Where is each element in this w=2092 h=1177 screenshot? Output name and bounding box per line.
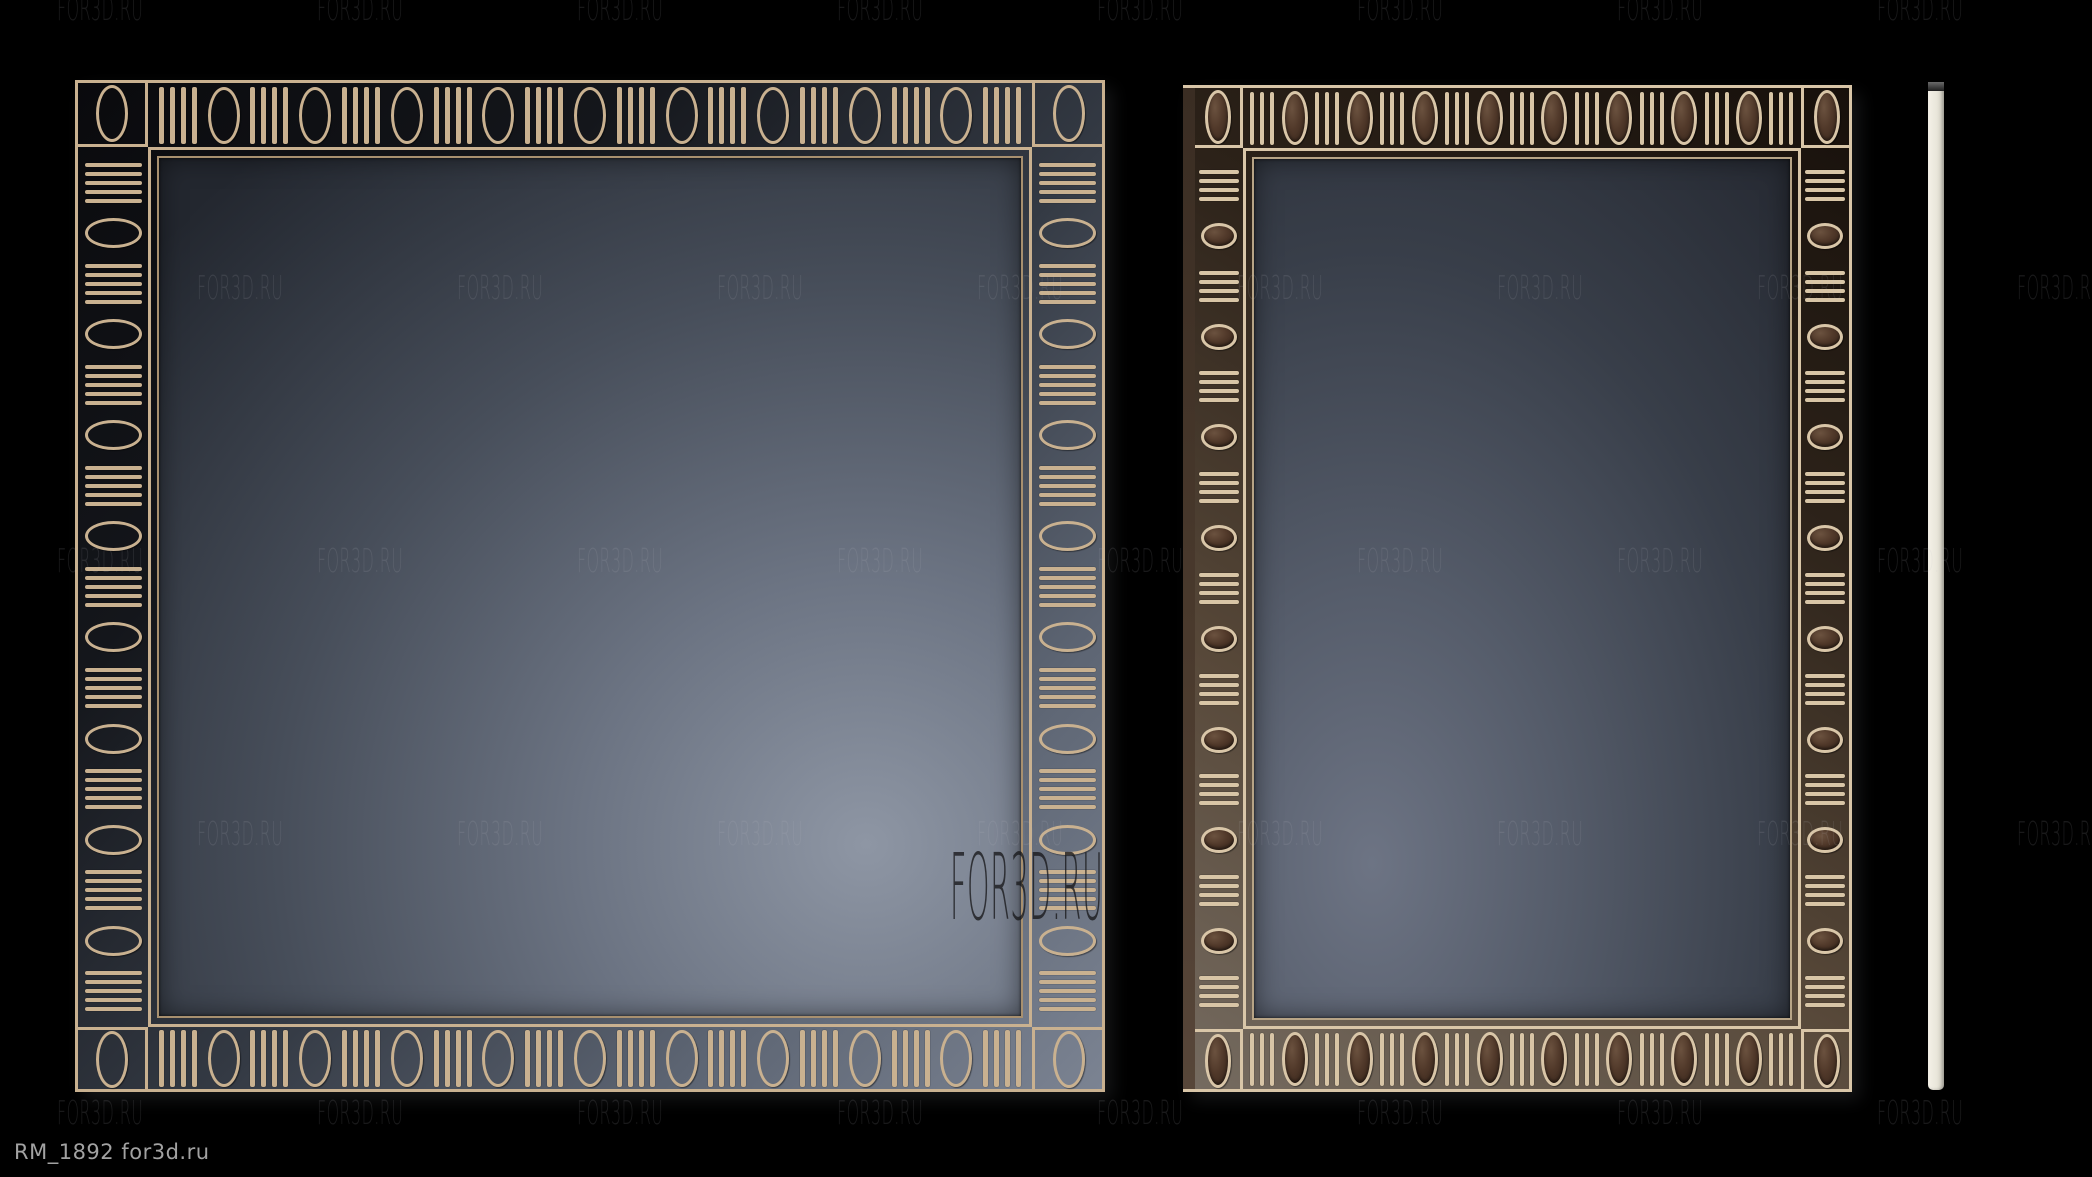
watermark-tile: FOR3D.RU <box>1097 544 1183 577</box>
bar-ornament <box>445 1030 450 1087</box>
bar-ornament <box>1039 998 1096 1002</box>
bar-ornament <box>1199 573 1239 577</box>
bar-ornament-group <box>983 87 1021 144</box>
bar-ornament <box>1039 585 1096 589</box>
oval-ornament <box>299 87 331 144</box>
oval-ornament <box>1039 218 1096 248</box>
bar-ornament <box>1199 280 1239 284</box>
bar-ornament <box>1805 985 1845 989</box>
bar-ornament <box>1199 298 1239 302</box>
oval-ornament <box>85 825 142 855</box>
bar-ornament <box>822 1030 827 1087</box>
oval-ornament <box>85 521 142 551</box>
bar-ornament <box>85 686 142 690</box>
bar-ornament <box>547 87 552 144</box>
bar-ornament <box>456 1030 461 1087</box>
bar-ornament <box>708 1030 713 1087</box>
bar-ornament <box>375 1030 380 1087</box>
bar-ornament <box>1199 976 1239 980</box>
bar-ornament-group <box>800 1030 838 1087</box>
bar-ornament <box>342 87 347 144</box>
bar-ornament-group <box>85 567 142 607</box>
bar-ornament-group <box>1199 875 1239 906</box>
frame-side-profile <box>1928 82 1944 1090</box>
bar-ornament-group <box>708 1030 746 1087</box>
bar-ornament <box>170 87 175 144</box>
bar-ornament <box>1039 603 1096 607</box>
bar-ornament <box>1039 787 1096 791</box>
bar-ornament <box>994 1030 999 1087</box>
bar-ornament <box>1725 1033 1729 1086</box>
oval-ornament <box>85 420 142 450</box>
oval-ornament <box>757 87 789 144</box>
oval-ornament <box>1671 1032 1697 1086</box>
bar-ornament <box>1199 801 1239 805</box>
bar-ornament-group <box>892 87 930 144</box>
oval-ornament <box>757 1030 789 1087</box>
bar-ornament <box>1039 181 1096 185</box>
bar-ornament <box>85 264 142 268</box>
watermark-tile: FOR3D.RU <box>1357 1096 1443 1129</box>
bar-ornament-group <box>1640 92 1664 145</box>
bar-ornament <box>1805 481 1845 485</box>
bar-ornament-group <box>1805 976 1845 1007</box>
bar-ornament <box>1705 92 1709 145</box>
bar-ornament <box>85 300 142 304</box>
bar-ornament <box>342 1030 347 1087</box>
right-ornament-strip <box>1801 148 1849 1029</box>
bar-ornament <box>1039 769 1096 773</box>
bar-ornament-group <box>525 87 563 144</box>
bar-ornament <box>1039 980 1096 984</box>
bar-ornament <box>1199 170 1239 174</box>
bar-ornament-group <box>342 87 380 144</box>
oval-ornament <box>1736 91 1762 145</box>
bar-ornament <box>434 87 439 144</box>
bar-ornament <box>983 87 988 144</box>
bar-ornament <box>1039 291 1096 295</box>
bar-ornament <box>1199 783 1239 787</box>
bar-ornament-group <box>1805 170 1845 201</box>
bar-ornament <box>1199 774 1239 778</box>
oval-ornament <box>1477 1032 1503 1086</box>
bar-ornament <box>85 484 142 488</box>
bar-ornament <box>1199 490 1239 494</box>
oval-ornament <box>1736 1032 1762 1086</box>
oval-ornament <box>1201 424 1237 450</box>
bar-ornament <box>85 998 142 1002</box>
watermark-tile: FOR3D.RU <box>1877 0 1963 25</box>
bar-ornament <box>85 383 142 387</box>
bar-ornament <box>1390 1033 1394 1086</box>
bar-ornament <box>1805 280 1845 284</box>
oval-ornament <box>1807 223 1843 249</box>
top-ornament-strip <box>1243 88 1801 148</box>
oval-ornament <box>1201 324 1237 350</box>
oval-ornament <box>666 87 698 144</box>
bar-ornament <box>1455 1033 1459 1086</box>
bar-ornament-group <box>1769 1033 1793 1086</box>
oval-ornament <box>85 319 142 349</box>
bar-ornament <box>903 87 908 144</box>
bar-ornament <box>445 87 450 144</box>
bar-ornament <box>1199 1003 1239 1007</box>
bar-ornament <box>800 1030 805 1087</box>
bar-ornament-group <box>250 1030 288 1087</box>
oval-ornament <box>1541 1032 1567 1086</box>
bar-ornament <box>1199 875 1239 879</box>
bar-ornament <box>434 1030 439 1087</box>
bar-ornament <box>833 87 838 144</box>
bar-ornament <box>1039 502 1096 506</box>
bar-ornament <box>558 87 563 144</box>
oval-ornament <box>85 218 142 248</box>
bar-ornament <box>1769 1033 1773 1086</box>
frame-corner-ornament <box>78 83 148 147</box>
oval-ornament <box>391 1030 423 1087</box>
oval-ornament <box>299 1030 331 1087</box>
bar-ornament <box>1805 792 1845 796</box>
oval-ornament <box>940 1030 972 1087</box>
bar-ornament <box>85 769 142 773</box>
bar-ornament <box>1039 484 1096 488</box>
corner-oval-ornament <box>96 1031 128 1088</box>
bar-ornament <box>1039 365 1096 369</box>
bar-ornament <box>1199 683 1239 687</box>
bar-ornament-group <box>1705 1033 1729 1086</box>
bar-ornament <box>1805 774 1845 778</box>
bar-ornament <box>85 576 142 580</box>
oval-ornament <box>1412 91 1438 145</box>
bar-ornament <box>1769 92 1773 145</box>
bar-ornament <box>1199 472 1239 476</box>
bar-ornament <box>1805 994 1845 998</box>
bar-ornament <box>250 1030 255 1087</box>
watermark-tile: FOR3D.RU <box>317 0 403 25</box>
bar-ornament <box>1039 796 1096 800</box>
bar-ornament-group <box>1250 92 1274 145</box>
bar-ornament <box>1805 600 1845 604</box>
bar-ornament-group <box>1640 1033 1664 1086</box>
oval-ornament <box>85 622 142 652</box>
bar-ornament <box>85 466 142 470</box>
bar-ornament <box>741 87 746 144</box>
oval-ornament <box>1807 324 1843 350</box>
bar-ornament-group <box>1805 472 1845 503</box>
bar-ornament <box>1510 92 1514 145</box>
bar-ornament <box>983 1030 988 1087</box>
oval-ornament <box>1039 521 1096 551</box>
bar-ornament <box>85 870 142 874</box>
bar-ornament-group <box>85 870 142 910</box>
bar-ornament <box>892 1030 897 1087</box>
bar-ornament-group <box>617 1030 655 1087</box>
bar-ornament <box>617 1030 622 1087</box>
bar-ornament <box>639 87 644 144</box>
bar-ornament <box>1585 1033 1589 1086</box>
bar-ornament <box>85 888 142 892</box>
bar-ornament <box>1039 300 1096 304</box>
bar-ornament <box>1039 805 1096 809</box>
bar-ornament <box>1805 499 1845 503</box>
bar-ornament <box>85 401 142 405</box>
bar-ornament <box>1530 1033 1534 1086</box>
bar-ornament <box>1199 792 1239 796</box>
bar-ornament <box>1039 282 1096 286</box>
bar-ornament <box>811 1030 816 1087</box>
oval-ornament <box>1282 1032 1308 1086</box>
bar-ornament <box>1520 1033 1524 1086</box>
bar-ornament <box>1595 1033 1599 1086</box>
watermark-tile: FOR3D.RU <box>2017 817 2092 850</box>
bar-ornament <box>1575 1033 1579 1086</box>
bar-ornament <box>1199 398 1239 402</box>
bar-ornament <box>1445 1033 1449 1086</box>
oval-ornament <box>85 926 142 956</box>
bar-ornament <box>914 1030 919 1087</box>
bar-ornament <box>617 87 622 144</box>
bar-ornament <box>1715 1033 1719 1086</box>
bar-ornament <box>85 365 142 369</box>
bar-ornament <box>1270 1033 1274 1086</box>
bar-ornament <box>85 971 142 975</box>
bar-ornament <box>1199 389 1239 393</box>
bar-ornament-group <box>85 163 142 203</box>
bar-ornament <box>1660 1033 1664 1086</box>
bar-ornament <box>1199 893 1239 897</box>
bar-ornament <box>1199 591 1239 595</box>
bar-ornament <box>85 493 142 497</box>
bar-ornament <box>1380 1033 1384 1086</box>
mirror-glass-cell <box>1243 148 1801 1029</box>
bar-ornament <box>547 1030 552 1087</box>
bar-ornament <box>85 475 142 479</box>
frame-corner-ornament <box>1801 1029 1849 1089</box>
bar-ornament <box>192 1030 197 1087</box>
bar-ornament <box>1715 92 1719 145</box>
bar-ornament-group <box>1250 1033 1274 1086</box>
oval-ornament <box>1807 525 1843 551</box>
oval-ornament <box>482 87 514 144</box>
watermark-tile: FOR3D.RU <box>837 0 923 25</box>
bar-ornament <box>170 1030 175 1087</box>
bar-ornament <box>1805 179 1845 183</box>
bar-ornament <box>1039 567 1096 571</box>
bar-ornament <box>1199 371 1239 375</box>
bar-ornament <box>800 87 805 144</box>
bar-ornament <box>85 172 142 176</box>
model-id-label: RM_1892 for3d.ru <box>14 1140 210 1164</box>
bar-ornament <box>85 392 142 396</box>
bar-ornament <box>1805 298 1845 302</box>
bar-ornament <box>1325 92 1329 145</box>
bar-ornament <box>1650 92 1654 145</box>
bar-ornament <box>1016 87 1021 144</box>
bar-ornament <box>1465 1033 1469 1086</box>
bar-ornament <box>467 1030 472 1087</box>
bar-ornament <box>1039 594 1096 598</box>
bar-ornament-group <box>525 1030 563 1087</box>
oval-ornament <box>1201 626 1237 652</box>
bar-ornament <box>1805 170 1845 174</box>
bar-ornament-group <box>1199 674 1239 705</box>
bar-ornament <box>1805 188 1845 192</box>
bar-ornament <box>1199 188 1239 192</box>
bar-ornament <box>85 668 142 672</box>
bar-ornament-group <box>250 87 288 144</box>
bar-ornament-group <box>892 1030 930 1087</box>
bar-ornament <box>1039 677 1096 681</box>
bar-ornament <box>892 87 897 144</box>
oval-ornament <box>1201 223 1237 249</box>
bar-ornament <box>364 87 369 144</box>
oval-ornament <box>1039 724 1096 754</box>
bar-ornament-group <box>342 1030 380 1087</box>
watermark-tile: FOR3D.RU <box>1877 1096 1963 1129</box>
bar-ornament-group <box>1039 264 1096 304</box>
bar-ornament-group <box>1199 774 1239 805</box>
bar-ornament <box>1260 1033 1264 1086</box>
oval-ornament <box>940 87 972 144</box>
watermark-tile: FOR3D.RU <box>317 1096 403 1129</box>
bar-ornament <box>85 787 142 791</box>
bar-ornament-group <box>85 466 142 506</box>
bar-ornament <box>181 87 186 144</box>
bar-ornament <box>628 87 633 144</box>
bar-ornament-group <box>1315 92 1339 145</box>
bar-ornament <box>1335 92 1339 145</box>
watermark-tile: FOR3D.RU <box>1617 0 1703 25</box>
oval-ornament <box>1412 1032 1438 1086</box>
left-ornament-strip <box>1195 148 1243 1029</box>
left-ornament-strip <box>78 147 148 1027</box>
oval-ornament <box>1347 91 1373 145</box>
bar-ornament <box>1805 1003 1845 1007</box>
bar-ornament <box>1805 674 1845 678</box>
bar-ornament <box>1039 264 1096 268</box>
oval-ornament <box>1606 1032 1632 1086</box>
bar-ornament <box>1039 273 1096 277</box>
bar-ornament <box>375 87 380 144</box>
bar-ornament <box>1199 380 1239 384</box>
frame-corner-ornament <box>1032 83 1102 147</box>
bar-ornament <box>708 87 713 144</box>
bar-ornament <box>914 87 919 144</box>
bar-ornament <box>650 1030 655 1087</box>
mirror-glass-cell <box>148 147 1032 1027</box>
bar-ornament <box>536 87 541 144</box>
bar-ornament-group <box>1575 92 1599 145</box>
oval-ornament <box>1201 525 1237 551</box>
bar-ornament <box>1039 475 1096 479</box>
bar-ornament-group <box>1805 573 1845 604</box>
corner-oval-ornament <box>1814 90 1840 144</box>
oval-ornament <box>85 724 142 754</box>
bar-ornament <box>1199 600 1239 604</box>
bar-ornament <box>1039 668 1096 672</box>
top-ornament-strip <box>148 83 1032 147</box>
bar-ornament-group <box>1315 1033 1339 1086</box>
bar-ornament <box>1039 392 1096 396</box>
bottom-ornament-strip <box>148 1027 1032 1089</box>
watermark-tile: FOR3D.RU <box>2017 271 2092 304</box>
bar-ornament <box>85 603 142 607</box>
frame-side-face <box>1183 88 1195 1089</box>
bar-ornament <box>1315 1033 1319 1086</box>
bar-ornament-group <box>1805 271 1845 302</box>
oval-ornament <box>1201 928 1237 954</box>
bar-ornament-group <box>617 87 655 144</box>
watermark-large: FOR3D.RU <box>950 842 1103 934</box>
bar-ornament-group <box>85 264 142 304</box>
oval-ornament <box>574 87 606 144</box>
bar-ornament <box>85 897 142 901</box>
watermark-tile: FOR3D.RU <box>1617 1096 1703 1129</box>
bar-ornament <box>1575 92 1579 145</box>
bar-ornament <box>85 796 142 800</box>
bar-ornament <box>1039 1007 1096 1011</box>
bar-ornament <box>1199 985 1239 989</box>
mirror-glass <box>159 158 1021 1016</box>
bar-ornament <box>1805 683 1845 687</box>
bar-ornament <box>283 87 288 144</box>
oval-ornament <box>849 87 881 144</box>
bar-ornament <box>1805 371 1845 375</box>
bar-ornament <box>1805 783 1845 787</box>
bar-ornament-group <box>85 668 142 708</box>
bar-ornament <box>1530 92 1534 145</box>
bar-ornament <box>1335 1033 1339 1086</box>
bar-ornament <box>261 1030 266 1087</box>
bar-ornament <box>85 282 142 286</box>
bar-ornament <box>364 1030 369 1087</box>
corner-oval-ornament <box>1814 1034 1840 1088</box>
bar-ornament <box>85 291 142 295</box>
bar-ornament <box>628 1030 633 1087</box>
bar-ornament <box>85 594 142 598</box>
bar-ornament-group <box>159 87 197 144</box>
watermark-tile: FOR3D.RU <box>1357 0 1443 25</box>
oval-ornament <box>1807 626 1843 652</box>
bar-ornament <box>85 374 142 378</box>
bar-ornament-group <box>1199 573 1239 604</box>
bar-ornament <box>1199 701 1239 705</box>
bar-ornament <box>1199 884 1239 888</box>
bar-ornament <box>1199 271 1239 275</box>
watermark-tile: FOR3D.RU <box>1097 0 1183 25</box>
oval-ornament <box>1039 622 1096 652</box>
corner-oval-ornament <box>1053 85 1085 142</box>
bar-ornament <box>159 87 164 144</box>
bar-ornament <box>272 87 277 144</box>
bar-ornament-group <box>1199 371 1239 402</box>
bar-ornament <box>1520 92 1524 145</box>
oval-ornament <box>482 1030 514 1087</box>
bar-ornament <box>822 87 827 144</box>
bar-ornament <box>1779 1033 1783 1086</box>
oval-ornament <box>1282 91 1308 145</box>
bar-ornament <box>1199 179 1239 183</box>
bar-ornament <box>925 87 930 144</box>
bar-ornament <box>1039 199 1096 203</box>
corner-oval-ornament <box>1205 1034 1231 1088</box>
bar-ornament <box>85 677 142 681</box>
bar-ornament <box>85 980 142 984</box>
bar-ornament <box>1039 190 1096 194</box>
frame-corner-ornament <box>1195 88 1243 148</box>
bar-ornament <box>1805 490 1845 494</box>
bar-ornament-group <box>1805 674 1845 705</box>
